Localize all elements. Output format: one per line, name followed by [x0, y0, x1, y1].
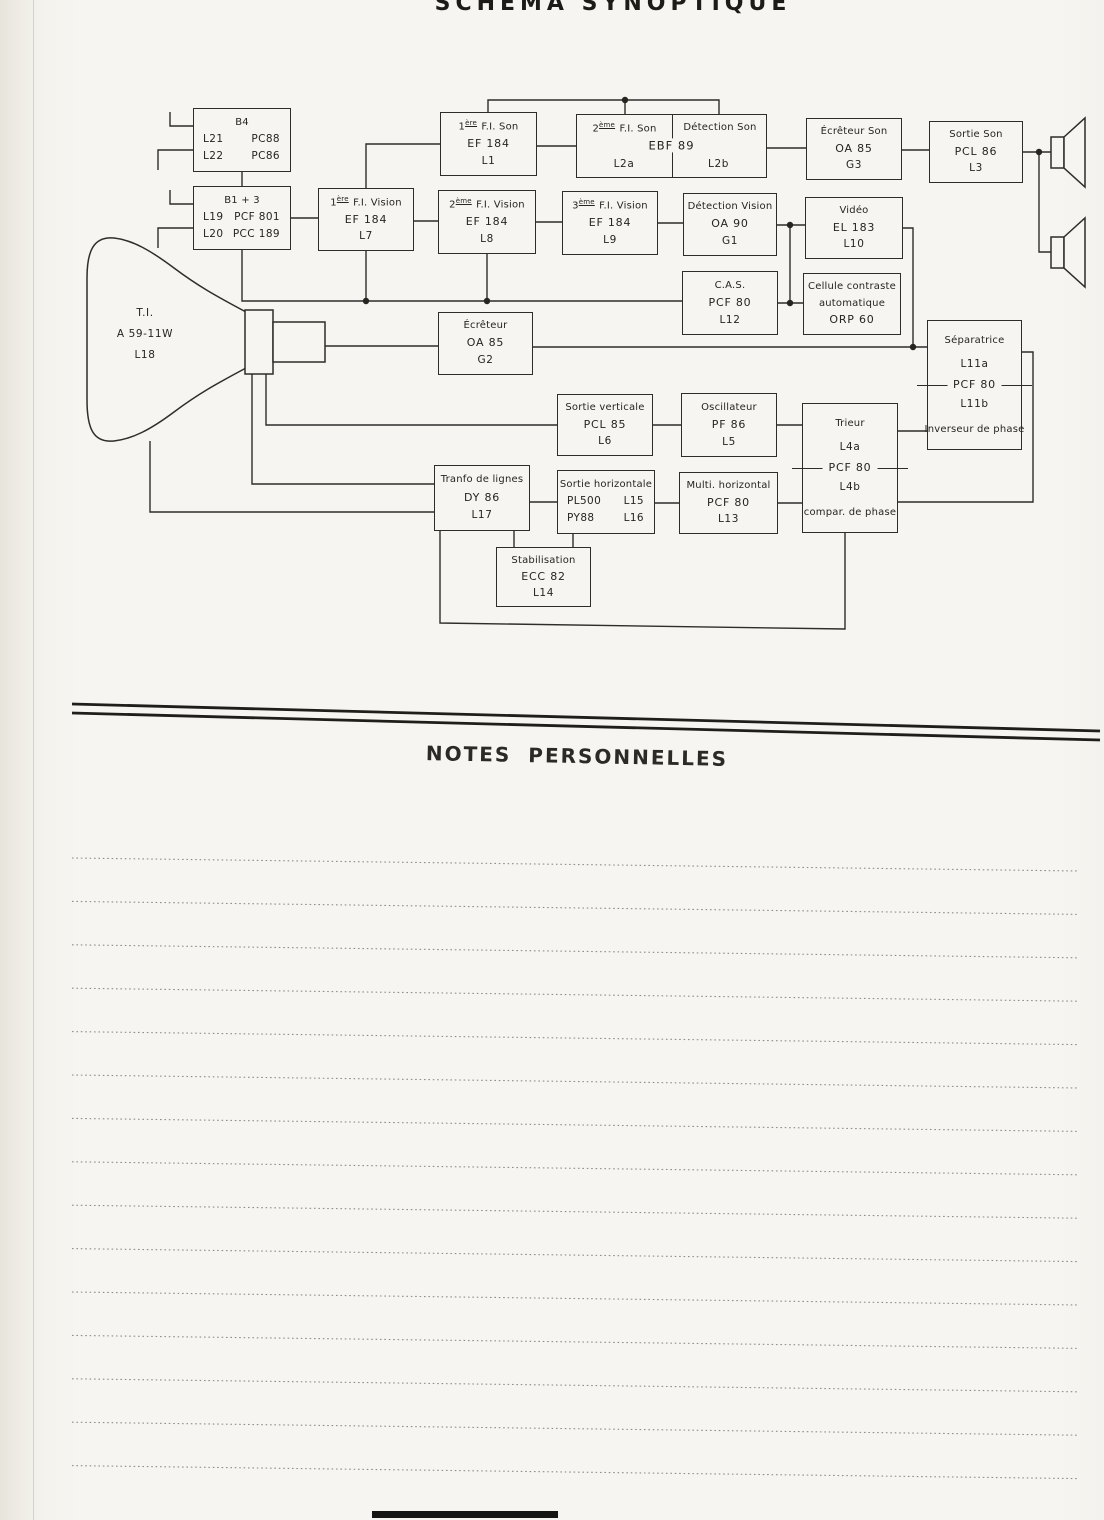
notes-ruled-lines	[72, 858, 1078, 1479]
block-trieur: Trieur L4a PCF 80 L4b compar. de phase	[802, 403, 898, 533]
block-cellule-contraste: Cellule contraste automatique ORP 60	[803, 273, 901, 335]
deflection-yoke	[245, 310, 273, 374]
block-video: Vidéo EL 183 L10	[805, 197, 903, 259]
block-title: B4	[235, 117, 249, 128]
block-fi3-vision: 3ème F.I. Vision EF 184 L9	[562, 191, 658, 255]
scanned-schematic-page: SCHÉMA SYNOPTIQUE	[0, 0, 1104, 1520]
block-sortie-son: Sortie Son PCL 86 L3	[929, 121, 1023, 183]
block-tuner-b1-3: B1 + 3 L19PCF 801 L20PCC 189	[193, 186, 291, 250]
antenna-stub	[170, 190, 193, 204]
block-transfo-lignes: Tranfo de lignes DY 86 L17	[434, 465, 530, 531]
tube-base	[273, 322, 325, 362]
block-stabilisation: Stabilisation ECC 82 L14	[496, 547, 591, 607]
block-detection-vision: Détection Vision OA 90 G1	[683, 193, 777, 256]
block-title: B1 + 3	[224, 195, 260, 206]
block-cas: C.A.S. PCF 80 L12	[682, 271, 778, 335]
scan-edge-mark	[372, 1511, 558, 1518]
block-sortie-verticale: Sortie verticale PCL 85 L6	[557, 394, 653, 456]
block-fi2-son-detection-son: 2ème F.I. Son Détection Son EBF 89 L2a L…	[576, 114, 767, 178]
antenna-stub	[170, 112, 193, 126]
block-ecreteur-son: Écrêteur Son OA 85 G3	[806, 118, 902, 180]
block-multi-horizontal: Multi. horizontal PCF 80 L13	[679, 472, 778, 534]
block-oscillateur: Oscillateur PF 86 L5	[681, 393, 777, 457]
block-fi1-vision: 1ère F.I. Vision EF 184 L7	[318, 188, 414, 251]
block-ecreteur-g2: Écrêteur OA 85 G2	[438, 312, 533, 375]
block-separatrice: Séparatrice L11a PCF 80 L11b Inverseur d…	[927, 320, 1022, 450]
antenna-stub	[158, 150, 193, 170]
block-sortie-horizontale: Sortie horizontale PL500L15 PY88L16	[557, 470, 655, 534]
block-tuner-b4: B4 L21PC88 L22PC86	[193, 108, 291, 172]
speaker-icon	[1051, 118, 1085, 187]
block-divider: PCF 80	[792, 468, 908, 469]
block-fi2-vision: 2ème F.I. Vision EF 184 L8	[438, 190, 536, 254]
block-divider: PCF 80	[917, 385, 1032, 386]
antenna-stub	[158, 228, 193, 248]
speaker-icon	[1051, 218, 1085, 287]
crt-label: T.I. A 59-11W L18	[84, 303, 206, 366]
section-divider-rule	[72, 704, 1100, 740]
block-fi1-son: 1ère F.I. Son EF 184 L1	[440, 112, 537, 176]
